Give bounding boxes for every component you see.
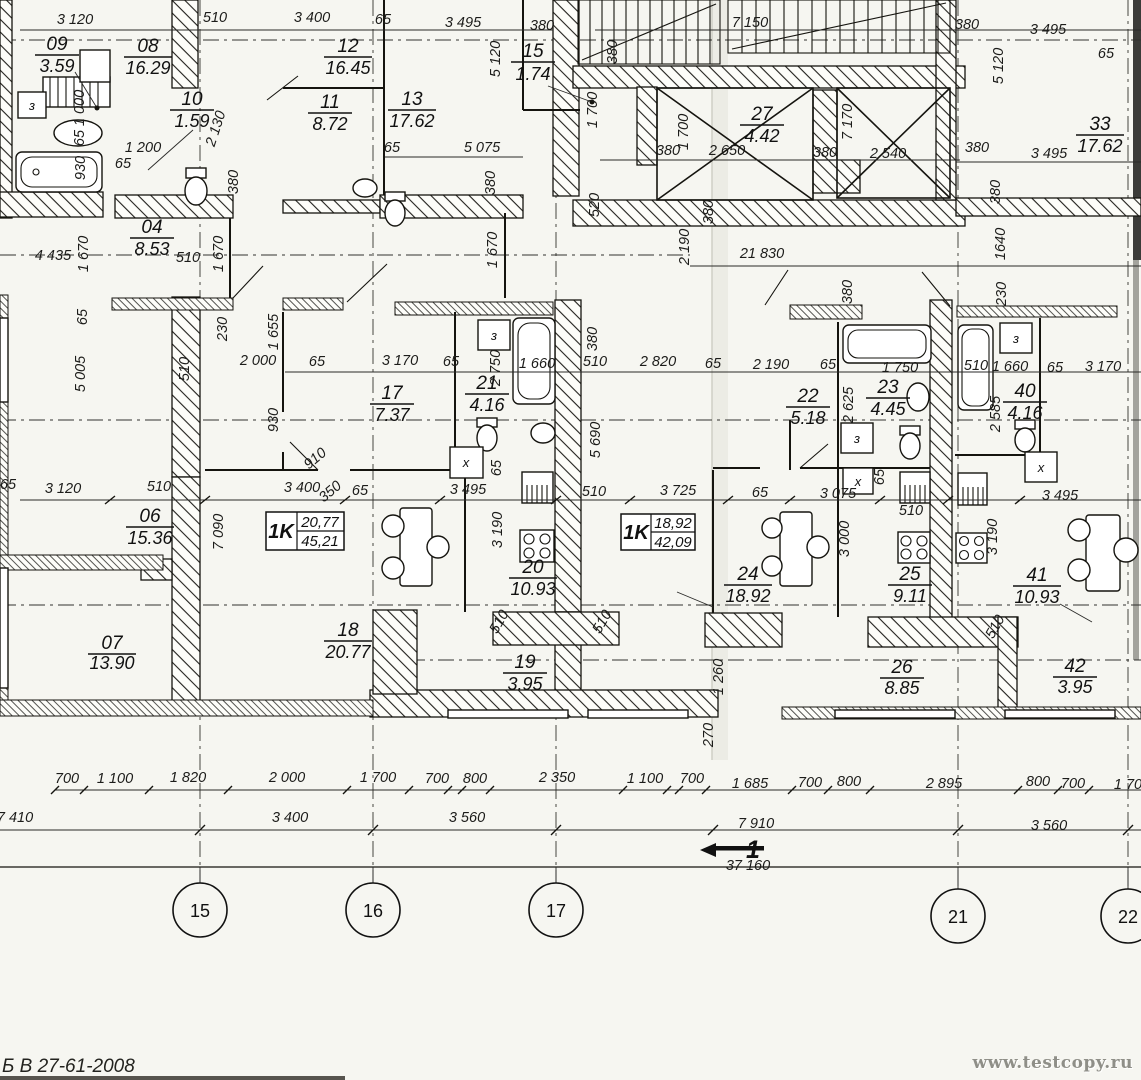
dim-label: 2 625 <box>841 386 857 424</box>
dim-label: 2 820 <box>639 354 676 370</box>
furniture-table <box>1068 515 1138 591</box>
dim-label: 5 005 <box>73 355 89 392</box>
dim-label: 65 <box>75 308 91 325</box>
grid-bubble: 17 <box>529 883 583 937</box>
dim-label: 7 410 <box>0 810 33 826</box>
dim-label: 380 <box>530 18 554 34</box>
dim-label: 3 400 <box>294 10 330 26</box>
svg-text:13: 13 <box>401 89 423 110</box>
room-label: 274.42 <box>740 104 784 146</box>
dim-label: 1 670 <box>211 236 227 272</box>
elevator-shafts <box>657 88 950 200</box>
apartment-badges: 1K 20,77 45,21 1K 18,92 42,09 <box>266 512 695 551</box>
dim-label: 1 685 <box>732 776 769 792</box>
dim-label: 1 000 <box>72 90 88 126</box>
dim-label: 700 <box>798 775 822 791</box>
dim-label: 1 260 <box>711 659 727 695</box>
dim-label: 380 <box>701 200 717 224</box>
dim-label: 3 120 <box>45 481 81 497</box>
svg-text:10: 10 <box>181 89 203 110</box>
svg-text:16.45: 16.45 <box>325 58 371 78</box>
svg-text:9.11: 9.11 <box>893 586 927 606</box>
toilet <box>185 168 207 205</box>
svg-text:8.85: 8.85 <box>884 678 920 698</box>
dim-label: 380 <box>988 180 1004 204</box>
wall <box>957 306 1117 317</box>
dim-label: 510 <box>176 250 200 266</box>
dim-label: 7 090 <box>211 514 227 550</box>
room-label: 118.72 <box>308 92 352 134</box>
dim-label: 380 <box>965 140 989 156</box>
dim-label: 380 <box>585 327 601 351</box>
wall <box>790 305 862 319</box>
dim-label: 380 <box>605 40 621 64</box>
room-label: 259.11 <box>888 564 932 606</box>
svg-text:21: 21 <box>948 907 968 927</box>
dim-label: 510 <box>583 354 607 370</box>
wall <box>115 195 233 218</box>
svg-text:22: 22 <box>1118 907 1138 927</box>
window <box>1005 710 1115 718</box>
dim-label: 3 000 <box>837 521 853 557</box>
dim-label: 510 <box>147 479 171 495</box>
svg-text:11: 11 <box>320 92 340 113</box>
vent-shaft: з <box>478 320 510 350</box>
dim-label: 65 <box>309 354 326 370</box>
dim-label: 930 <box>73 156 89 180</box>
washer-label: x <box>1037 460 1045 475</box>
dim-label: 5 690 <box>588 422 604 458</box>
svg-text:42: 42 <box>1064 656 1086 677</box>
dim-label: 380 <box>226 170 242 194</box>
dim-label: 65 <box>489 459 505 476</box>
cabinet <box>80 50 110 82</box>
dim-label: 2 190 <box>677 229 693 266</box>
wall <box>172 297 200 477</box>
toilet <box>477 418 497 451</box>
wall <box>283 200 380 213</box>
svg-text:13.90: 13.90 <box>89 653 134 673</box>
washer-label: x <box>462 455 470 470</box>
furniture-table <box>382 508 449 586</box>
svg-text:8.53: 8.53 <box>134 239 169 259</box>
dim-label: 65 <box>115 156 132 172</box>
svg-text:07: 07 <box>101 633 124 654</box>
sink <box>531 423 555 443</box>
svg-text:16.29: 16.29 <box>125 58 170 78</box>
dim-label: 3 190 <box>490 512 506 548</box>
staircase <box>578 0 950 64</box>
dim-label: 910 <box>301 445 330 473</box>
dim-label: 3 560 <box>1031 818 1067 834</box>
grid-bubble: 22 <box>1101 889 1141 943</box>
dim-label: 3 120 <box>57 12 93 28</box>
dim-label: 65 <box>375 12 392 28</box>
dim-label: 380 <box>813 145 837 161</box>
sink <box>353 179 377 197</box>
dim-label: 3 400 <box>284 480 320 496</box>
dim-label: 3 170 <box>382 353 418 369</box>
dim-label: 3 725 <box>660 483 697 499</box>
dim-label: 3 495 <box>1030 22 1067 38</box>
svg-text:15.36: 15.36 <box>127 528 173 548</box>
dim-label: 1 700 <box>360 770 396 786</box>
dim-label: 5 075 <box>464 140 501 156</box>
room-label: 151.74 <box>511 41 555 84</box>
room-label: 268.85 <box>880 657 924 698</box>
dim-label: 2 540 <box>869 146 906 162</box>
dim-label: 380 <box>656 143 680 159</box>
room-label: 101.59 <box>170 89 214 131</box>
dim-label: 700 <box>425 771 449 787</box>
dim-label: 3 190 <box>985 519 1001 555</box>
grid-bubble: 15 <box>173 883 227 937</box>
dim-label: 65 <box>752 485 769 501</box>
room-label: 1820.77 <box>324 620 372 662</box>
dim-label: 65 <box>705 356 722 372</box>
wall <box>573 66 965 88</box>
wall <box>637 87 657 165</box>
dim-label: 7 150 <box>732 15 768 31</box>
svg-text:3.95: 3.95 <box>507 674 543 694</box>
room-label: 0713.90 <box>88 633 136 673</box>
room-label: 177.37 <box>370 383 414 425</box>
dim-label: 510 <box>964 358 988 374</box>
dim-label: 1 70 <box>1114 777 1141 793</box>
toilet <box>385 192 405 226</box>
dim-label: 3 495 <box>1031 146 1068 162</box>
room-label: 234.45 <box>866 377 910 419</box>
wall <box>0 192 103 217</box>
vent-label: з <box>1012 331 1019 346</box>
wall <box>553 0 579 196</box>
window <box>448 710 568 718</box>
stove <box>956 533 987 563</box>
toilet <box>1015 420 1035 452</box>
dim-label: 1 700 <box>585 92 601 128</box>
dim-label: 5 120 <box>991 48 1007 84</box>
svg-text:21: 21 <box>475 373 497 394</box>
dim-label: 65 <box>1047 360 1064 376</box>
apartment-total-area: 42,09 <box>654 534 692 551</box>
window <box>0 318 8 402</box>
wall <box>705 613 782 647</box>
svg-text:4.16: 4.16 <box>1007 403 1043 423</box>
dim-label: 3 495 <box>450 482 487 498</box>
dim-label: 700 <box>680 771 704 787</box>
room-label: 1317.62 <box>388 89 436 131</box>
grid-bubble: 16 <box>346 883 400 937</box>
room-label: 0615.36 <box>126 506 174 548</box>
dim-label: 65 <box>352 483 369 499</box>
watermark: www.testcopy.ru <box>972 1053 1133 1073</box>
vent-shaft: з <box>841 423 873 453</box>
dim-label: 930 <box>266 408 282 432</box>
svg-text:17.62: 17.62 <box>389 111 434 131</box>
washing-machine: x <box>450 447 483 478</box>
svg-text:04: 04 <box>141 217 162 238</box>
dim-label: 5 120 <box>488 41 504 77</box>
apartment-total-area: 45,21 <box>301 533 339 550</box>
dim-label: 1 660 <box>992 359 1028 375</box>
room-label: 4110.93 <box>1013 565 1061 607</box>
dim-label: 800 <box>463 771 487 787</box>
wall <box>0 0 12 218</box>
svg-text:3.59: 3.59 <box>39 56 74 76</box>
svg-text:20: 20 <box>521 557 544 578</box>
svg-text:06: 06 <box>139 506 161 527</box>
dim-label: 2 895 <box>925 776 963 792</box>
dim-label: 3 075 <box>820 486 857 502</box>
svg-text:27: 27 <box>750 104 774 125</box>
dim-label: 1640 <box>993 228 1009 260</box>
room-label: 423.95 <box>1053 656 1097 697</box>
window <box>588 710 688 718</box>
dim-label: 510 <box>899 503 923 519</box>
toilet <box>900 426 920 459</box>
bathtub <box>16 152 102 192</box>
svg-text:17: 17 <box>381 383 404 404</box>
sheet-note: Б В 27-61-2008 <box>2 1056 135 1077</box>
dim-label: 3 495 <box>445 15 482 31</box>
dim-label: 2 650 <box>708 143 745 159</box>
apartment-badge: 1K 18,92 42,09 <box>621 514 695 551</box>
vent-shaft: з <box>18 92 46 118</box>
apartment-living-area: 20,77 <box>300 514 339 531</box>
dim-label: 65 <box>72 129 88 146</box>
dim-label: 510 <box>177 357 193 381</box>
dim-label: 230 <box>215 317 231 342</box>
apartment-type: 1K <box>268 521 295 543</box>
room-label: 225.18 <box>786 386 830 428</box>
dim-label: 65 <box>1098 46 1115 62</box>
apartment-badge: 1K 20,77 45,21 <box>266 512 344 550</box>
dim-label: 800 <box>837 774 861 790</box>
wall <box>930 300 952 620</box>
vent-shaft: з <box>1000 323 1032 353</box>
svg-text:12: 12 <box>337 36 359 57</box>
dim-label: 350 <box>316 478 345 506</box>
apartment-living-area: 18,92 <box>654 515 692 532</box>
svg-text:4.16: 4.16 <box>469 395 505 415</box>
svg-text:15: 15 <box>522 41 544 62</box>
dim-label: 700 <box>1061 776 1085 792</box>
dim-label: 1 670 <box>76 236 92 272</box>
dim-label: 1 750 <box>882 360 918 376</box>
floor-plan-sheet: з з з з x x x 3 120 510 3 400 65 3 495 3… <box>0 0 1141 1080</box>
svg-text:1.74: 1.74 <box>515 64 550 84</box>
dim-label: 2 585 <box>988 395 1004 433</box>
dim-label: 1 820 <box>170 770 206 786</box>
wall <box>395 302 553 315</box>
svg-text:24: 24 <box>736 564 758 585</box>
dim-label: 2 000 <box>239 353 276 369</box>
furniture-table <box>762 512 829 586</box>
dim-label: 380 <box>483 171 499 195</box>
dim-label: 510 <box>582 484 606 500</box>
svg-text:25: 25 <box>898 564 921 585</box>
svg-text:5.18: 5.18 <box>790 408 825 428</box>
room-label: 048.53 <box>130 217 174 259</box>
dim-label: 7 910 <box>738 816 774 832</box>
dim-label: 3 170 <box>1085 359 1121 375</box>
dim-label: 520 <box>587 193 603 217</box>
dim-label: 2 000 <box>268 770 305 786</box>
wall <box>172 0 198 88</box>
dim-label: 380 <box>955 17 979 33</box>
svg-text:16: 16 <box>363 901 383 921</box>
dim-label: 1 200 <box>125 140 161 156</box>
vent-label: з <box>490 328 497 343</box>
svg-text:22: 22 <box>796 386 819 407</box>
dim-label: 800 <box>1026 774 1050 790</box>
wall <box>172 477 200 713</box>
svg-text:08: 08 <box>137 36 159 57</box>
svg-text:18.92: 18.92 <box>725 586 770 606</box>
vent-label: з <box>28 98 35 113</box>
window <box>0 568 8 688</box>
vent-label: з <box>853 431 860 446</box>
dim-label: 1 670 <box>485 232 501 268</box>
svg-text:20.77: 20.77 <box>324 642 371 662</box>
svg-text:8.72: 8.72 <box>312 114 347 134</box>
svg-text:09: 09 <box>46 34 68 55</box>
stair-treads <box>742 0 938 53</box>
grid-bubble: 21 <box>931 889 985 943</box>
dim-label: 21 830 <box>739 246 784 262</box>
svg-text:3.95: 3.95 <box>1057 677 1093 697</box>
svg-text:7.37: 7.37 <box>374 405 410 425</box>
wall <box>283 298 343 310</box>
svg-text:1.59: 1.59 <box>174 111 209 131</box>
dim-label: 1 100 <box>97 771 133 787</box>
dim-label: 2 350 <box>538 770 575 786</box>
wall <box>112 298 233 310</box>
dim-label: 65 <box>0 477 17 493</box>
room-label: 0816.29 <box>124 36 172 78</box>
bathtub <box>843 325 931 363</box>
svg-text:33: 33 <box>1089 114 1111 135</box>
dim-label: 270 <box>701 723 717 748</box>
svg-text:18: 18 <box>337 620 359 641</box>
grid-bubbles: 15 16 17 21 22 <box>173 883 1141 943</box>
dim-label: 510 <box>203 10 227 26</box>
dim-label: 3 560 <box>449 810 485 826</box>
wall <box>373 610 417 694</box>
room-label: 193.95 <box>503 652 547 694</box>
room-label: 2010.93 <box>509 557 557 599</box>
radiator <box>900 472 930 503</box>
dim-label: 1 655 <box>266 313 282 350</box>
svg-text:17: 17 <box>546 901 566 921</box>
dim-label: 65 <box>820 357 837 373</box>
dim-label: 2 190 <box>752 357 789 373</box>
dim-label: 7 170 <box>840 104 856 140</box>
dim-label: 1 660 <box>519 356 555 372</box>
svg-text:10.93: 10.93 <box>1014 587 1059 607</box>
stove <box>898 532 930 563</box>
window <box>835 710 955 718</box>
section-number: 1 <box>746 836 760 864</box>
washing-machine: x <box>1025 452 1057 482</box>
svg-text:41: 41 <box>1026 565 1047 586</box>
svg-text:26: 26 <box>890 657 913 678</box>
wall <box>555 300 581 612</box>
svg-text:4.42: 4.42 <box>744 126 779 146</box>
dim-label: 380 <box>840 280 856 304</box>
svg-text:15: 15 <box>190 901 210 921</box>
room-label: 3317.62 <box>1076 114 1124 156</box>
room-label: 1216.45 <box>324 36 372 78</box>
dim-label: 1 100 <box>627 771 663 787</box>
wall <box>0 555 163 570</box>
dim-label: 65 <box>443 354 460 370</box>
wall <box>0 700 373 716</box>
wall <box>956 198 1141 216</box>
dim-label: 230 <box>994 282 1010 307</box>
dim-label: 700 <box>55 771 79 787</box>
svg-text:40: 40 <box>1014 381 1036 402</box>
wall <box>573 200 965 226</box>
svg-text:23: 23 <box>876 377 899 398</box>
dim-label: 65 <box>872 468 888 485</box>
svg-text:10.93: 10.93 <box>510 579 555 599</box>
svg-text:19: 19 <box>514 652 536 673</box>
dim-label: 3 495 <box>1042 488 1079 504</box>
sink <box>907 383 929 411</box>
svg-text:17.62: 17.62 <box>1077 136 1122 156</box>
svg-text:4.45: 4.45 <box>870 399 906 419</box>
radiator <box>522 472 553 503</box>
dim-label: 3 400 <box>272 810 308 826</box>
dim-label: 65 <box>384 140 401 156</box>
apartment-type: 1K <box>623 522 650 544</box>
dim-label: 4 435 <box>35 248 72 264</box>
